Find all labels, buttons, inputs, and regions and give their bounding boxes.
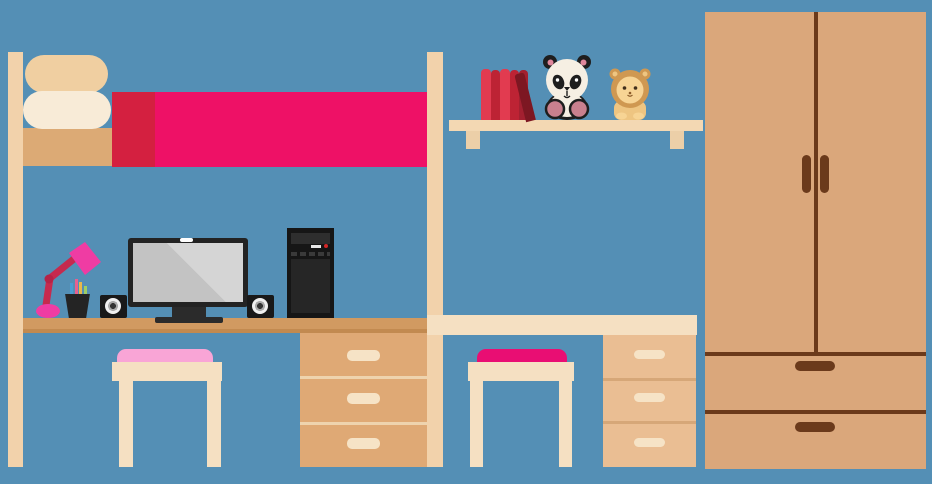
wardrobe-divider-line [705, 410, 926, 414]
wardrobe-divider-line [705, 352, 926, 356]
lamp-shade [69, 242, 101, 275]
speaker-cone [252, 298, 268, 314]
bed-blanket [155, 92, 427, 167]
drawer-divider [603, 421, 696, 424]
lion-plush [606, 64, 654, 120]
bed-mattress [23, 128, 113, 166]
tower-vents [291, 252, 330, 256]
stool-right-seat [468, 362, 574, 381]
wardrobe-door-handle-left [802, 155, 811, 193]
panda-foot-left [546, 100, 564, 118]
drawer-divider [300, 422, 427, 425]
panda-eye-right [575, 78, 578, 81]
bed-pillow-back [25, 55, 108, 93]
wardrobe [705, 12, 926, 469]
tower-side-panel [291, 259, 330, 313]
speaker-cone [105, 298, 121, 314]
tower-top-panel [291, 233, 330, 244]
stool-right-leg [470, 381, 483, 467]
shelf-bracket-right [670, 131, 684, 149]
shelf-bracket-left [466, 131, 480, 149]
bed-pillow-front [23, 91, 111, 129]
bed-blanket-fold [112, 92, 155, 167]
panda-ear-right-inner [581, 60, 587, 66]
drawer-handle [634, 350, 665, 359]
drawer-unit-right [603, 335, 696, 467]
drawer-divider [603, 378, 696, 381]
wall-shelf-board [449, 120, 703, 131]
drawer-handle [347, 393, 380, 404]
panda-plush [538, 50, 596, 120]
lamp-base [36, 304, 60, 318]
drawer-handle [347, 350, 380, 361]
lion-nose [629, 92, 632, 95]
desk-right-surface [427, 315, 697, 335]
pencil [79, 282, 82, 296]
monitor-stand-base [155, 317, 223, 323]
stool-left-leg [119, 381, 133, 467]
speaker-right [247, 295, 274, 318]
book [481, 69, 491, 120]
tower-drive-slot [311, 245, 321, 248]
drawer-handle [634, 393, 665, 402]
monitor-screen [133, 243, 243, 302]
stool-left-leg [207, 381, 221, 467]
desk-left-surface [23, 318, 427, 329]
stool-right-leg [559, 381, 572, 467]
drawer-handle [634, 438, 665, 447]
stool-left-seat [112, 362, 222, 381]
book [500, 69, 510, 120]
bed-post-right [427, 52, 443, 467]
wardrobe-drawer-handle [795, 361, 835, 371]
lion-face [617, 77, 644, 104]
speaker-left [100, 295, 127, 318]
monitor-stand-neck [172, 307, 206, 317]
bed-post-left [8, 52, 23, 467]
tower-power-light [324, 244, 328, 248]
lion-paw-left [616, 113, 627, 120]
monitor-webcam [180, 238, 193, 242]
wardrobe-door-handle-right [820, 155, 829, 193]
lion-eye-left [623, 86, 627, 90]
lion-eye-right [634, 86, 638, 90]
wardrobe-drawer-handle [795, 422, 835, 432]
pc-tower [287, 228, 334, 318]
drawer-unit-left [300, 333, 427, 467]
wardrobe-door-split [814, 12, 818, 354]
lion-paw-right [633, 113, 644, 120]
drawer-handle [347, 438, 380, 449]
lamp-elbow-joint [45, 275, 54, 284]
pencil [75, 279, 78, 296]
kids-room-scene [0, 0, 932, 484]
panda-eye-left [556, 78, 559, 81]
book [491, 70, 500, 120]
panda-foot-right [570, 100, 588, 118]
drawer-divider [300, 376, 427, 379]
panda-ear-left-inner [548, 60, 554, 66]
